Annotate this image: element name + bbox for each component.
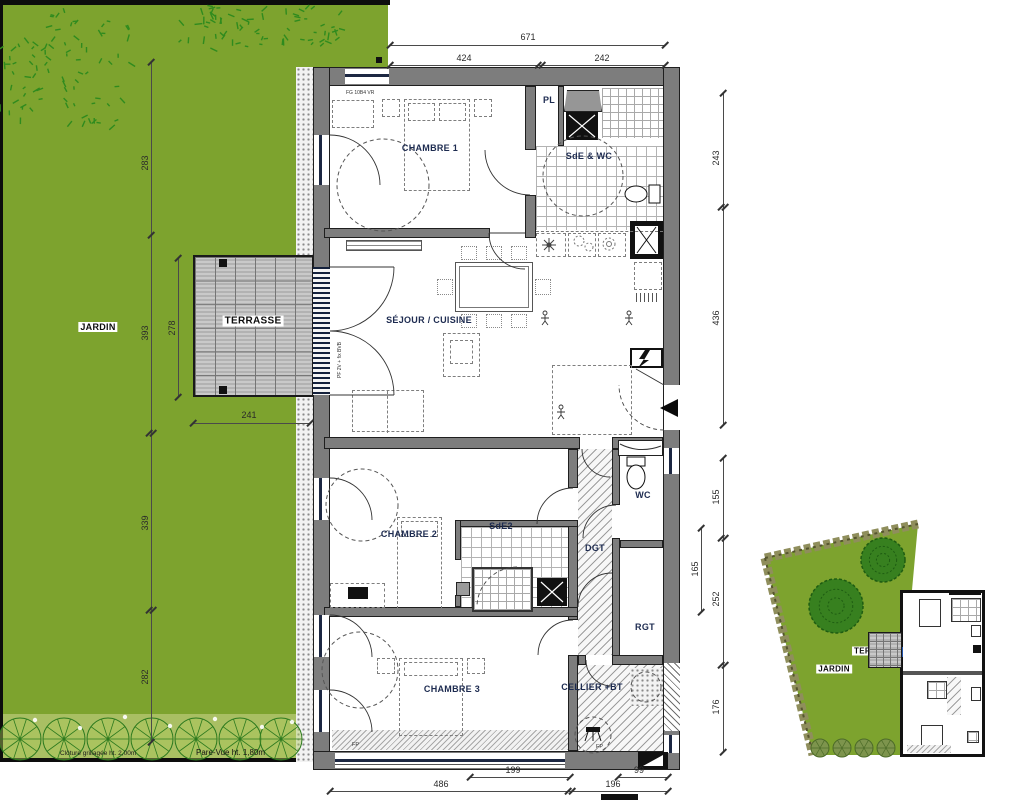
basin-cross — [569, 115, 595, 137]
turning-circles — [322, 136, 661, 753]
screen-label: Pare-Vue ht. 1,80m — [196, 748, 265, 757]
wc-basin-curve — [620, 444, 661, 450]
grass-texture — [0, 5, 345, 130]
dim-line — [178, 258, 179, 397]
dim-label: 242 — [594, 53, 609, 63]
toilet-tank — [649, 185, 660, 203]
vmc-circle — [631, 672, 661, 702]
dim-label: 199 — [505, 765, 520, 775]
toilet-icon — [625, 186, 647, 202]
accessibility-icons — [541, 311, 633, 419]
inset-terrace-decking — [868, 632, 902, 668]
dim-label: 339 — [140, 515, 150, 530]
hob-ring-icon — [585, 243, 593, 251]
door-swing-arcs — [330, 135, 664, 732]
inset-floorplan — [900, 590, 985, 757]
dim-label: 282 — [140, 669, 150, 684]
sink-cross — [637, 227, 656, 253]
inset-wall — [903, 671, 982, 675]
dim-label: 671 — [520, 32, 535, 42]
dim-line — [570, 791, 668, 792]
room-label-sde-wc: SdE & WC — [566, 151, 612, 161]
room-label-chambre2: CHAMBRE 2 — [381, 529, 437, 539]
room-label-cellier: CELLIER +BT — [561, 682, 623, 692]
floor-plan-canvas: 671 424 242 243 436 155 252 176 165 283 … — [0, 0, 1013, 800]
fp-label: FP — [596, 744, 603, 750]
fp-label: FP — [352, 742, 359, 748]
boiler-icon — [586, 727, 600, 732]
inset-fixture — [967, 731, 979, 743]
dim-label: 99 — [634, 765, 644, 775]
inset-dgt — [947, 677, 961, 715]
appliance-swirl-icon — [607, 242, 612, 247]
room-label-wc: WC — [635, 490, 651, 500]
dim-label: 486 — [433, 779, 448, 789]
lightning-icon — [638, 350, 650, 368]
dim-line — [723, 458, 724, 752]
window-spec-label: FG 10B4 VR — [346, 90, 374, 96]
dim-label: 196 — [605, 779, 620, 789]
dim-label: 252 — [711, 591, 721, 606]
inset-fixture — [973, 645, 981, 653]
appliance-swirl-icon — [603, 238, 615, 250]
basin-cross — [541, 582, 563, 602]
extractor-fan-icon — [542, 238, 556, 252]
entry-arrow-icon — [660, 399, 678, 417]
dim-line — [330, 791, 570, 792]
inset-fixture — [971, 625, 981, 637]
garden-label: JARDIN — [78, 322, 117, 332]
dim-line — [151, 62, 152, 742]
inset-vent — [949, 590, 981, 595]
room-label-chambre1: CHAMBRE 1 — [402, 143, 458, 153]
dim-label: 278 — [167, 320, 177, 335]
fence-label: Clôture grillagée ht. 2,00m — [60, 750, 136, 757]
room-label-chambre3: CHAMBRE 3 — [424, 684, 480, 694]
inset-sdb — [951, 598, 981, 622]
hob-ring-icon — [574, 236, 584, 246]
dim-label: 176 — [711, 699, 721, 714]
boiler-legs — [585, 732, 601, 741]
window-spec-label: PF 2V + fix BVB — [337, 342, 343, 378]
inset-garden-label: JARDIN — [816, 665, 852, 674]
fixture-icons — [541, 115, 678, 741]
inset-sill — [907, 745, 951, 753]
dim-line — [618, 777, 668, 778]
dim-line — [470, 777, 570, 778]
terrace-label: TERRASSE — [223, 316, 284, 327]
dim-line — [701, 528, 702, 612]
dim-line — [723, 93, 724, 425]
room-label-pl: PL — [543, 95, 555, 105]
dim-label: 243 — [711, 150, 721, 165]
inset-bed — [919, 599, 941, 627]
dim-label: 283 — [140, 155, 150, 170]
dim-line — [193, 423, 310, 424]
toilet-icon — [627, 465, 645, 489]
dim-label: 393 — [140, 325, 150, 340]
room-label-sejour: SÉJOUR / CUISINE — [386, 315, 472, 325]
dim-label: 155 — [711, 489, 721, 504]
room-label-rgt: RGT — [635, 622, 655, 632]
dim-label: 436 — [711, 310, 721, 325]
dim-line — [390, 65, 665, 66]
inset-sde2 — [927, 681, 947, 699]
room-label-sde2: SdE2 — [489, 521, 513, 531]
dim-label: 165 — [690, 561, 700, 576]
dim-label: 241 — [241, 410, 256, 420]
inset-wc — [971, 687, 981, 701]
scale-bar — [601, 794, 638, 800]
dim-label: 424 — [456, 53, 471, 63]
room-label-dgt: DGT — [585, 543, 605, 553]
dim-line — [390, 45, 665, 46]
